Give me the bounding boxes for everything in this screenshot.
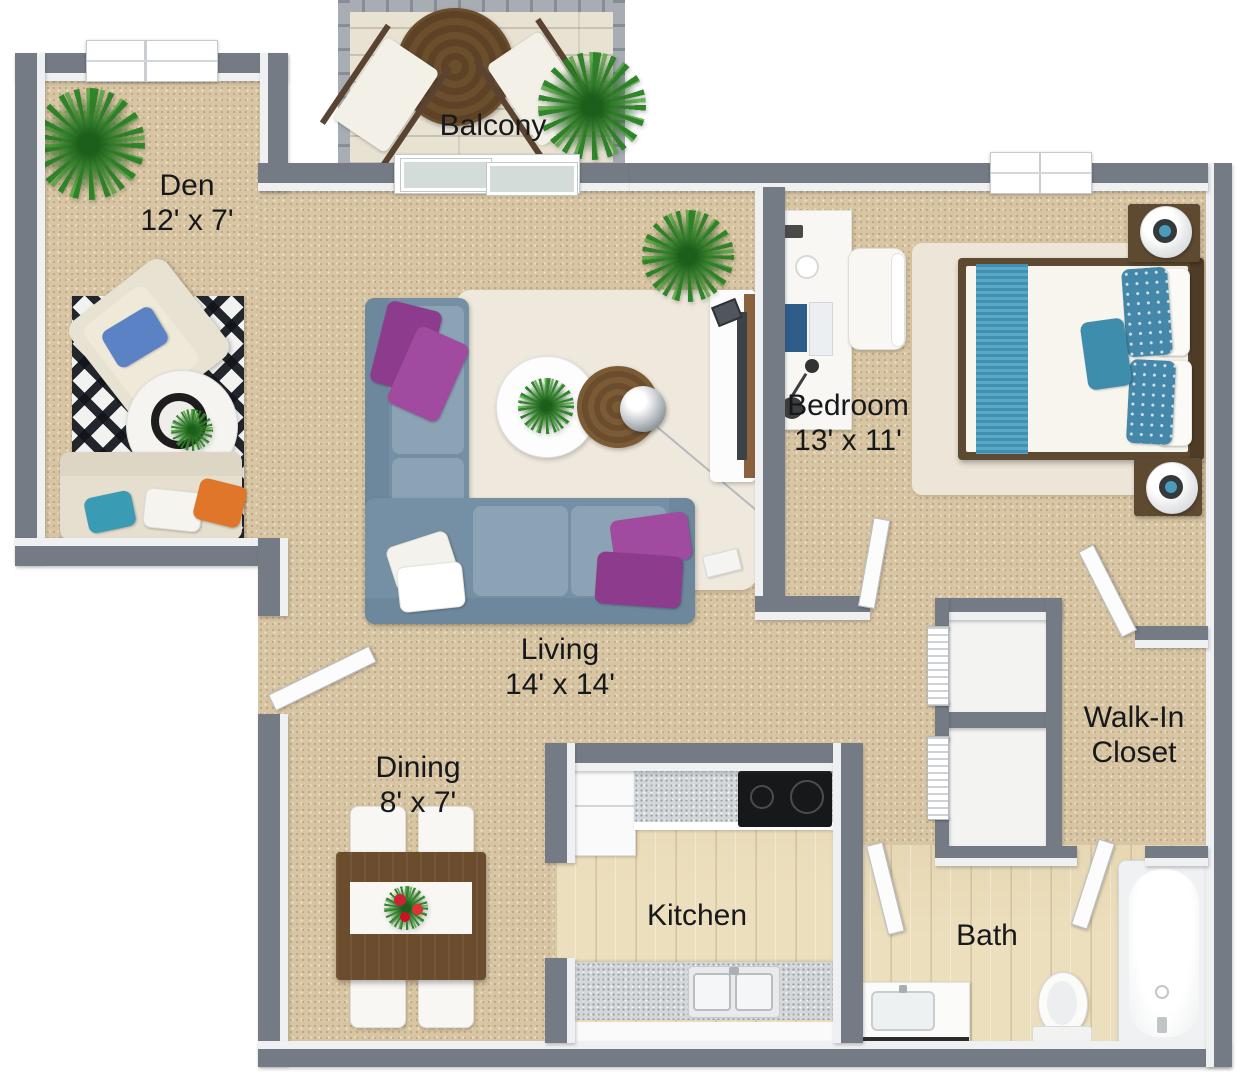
wall-bath-top-west: [935, 846, 1077, 866]
wall-closet-west-stub: [935, 700, 949, 740]
red-flower: [400, 912, 410, 922]
sink-basin: [693, 973, 731, 1011]
wall-closet-top: [935, 598, 1062, 620]
den-dims: 12' x 7': [140, 203, 233, 238]
toilet-seat: [1047, 981, 1077, 1025]
wall-den-left: [15, 53, 45, 563]
wall-kitchen-right: [833, 743, 863, 1043]
dining-table: [336, 852, 486, 980]
wall-bedroom-top-west: [630, 163, 997, 191]
laptop-screen: [785, 304, 807, 352]
bedroom-name: Bedroom: [787, 389, 909, 422]
wall-living-top-west: [258, 163, 403, 191]
desk-chair: [848, 248, 906, 350]
tv-console: [710, 290, 756, 482]
purple-pillow: [594, 551, 683, 609]
double-sink: [688, 966, 780, 1018]
wall-living-bedroom: [755, 187, 785, 602]
tub-faucet: [1157, 1017, 1167, 1033]
vanity-faucet: [899, 985, 907, 993]
window-sill-line: [991, 172, 1091, 174]
burner: [790, 780, 824, 814]
fridge-door-line: [567, 805, 635, 807]
desk-lamp-head: [805, 359, 819, 373]
slider-glass-panel: [401, 159, 491, 191]
refrigerator: [566, 768, 636, 856]
wall-left-upper: [258, 538, 288, 616]
room-label-balcony: Balcony: [440, 108, 547, 143]
red-flower: [412, 904, 423, 915]
walk-in-closet-name: Walk-In Closet: [1084, 701, 1185, 769]
wall-closet-west-stub: [935, 816, 949, 848]
wall-closet-mid: [935, 712, 1046, 728]
balcony-sliding-door: [394, 154, 580, 194]
kitchen-toe-band: [566, 1022, 833, 1043]
balcony-name: Balcony: [440, 109, 547, 142]
wall-kitchen-top: [545, 743, 855, 771]
wall-right: [1206, 163, 1232, 1067]
den-window: [86, 40, 218, 82]
red-flower: [394, 894, 406, 906]
tv-screen: [737, 312, 747, 460]
dining-dims: 8' x 7': [375, 785, 460, 820]
faucet: [729, 967, 739, 975]
arc-lamp-shade: [620, 386, 666, 432]
living-dims: 14' x 14': [505, 667, 615, 702]
tub-basin: [1129, 869, 1199, 1037]
dining-chair: [350, 974, 406, 1028]
wall-bedroom-top-east: [1088, 163, 1208, 191]
slider-glass-panel: [487, 163, 577, 195]
linen-closet-bifold-door: [927, 626, 949, 706]
wall-left-lower: [258, 714, 288, 1065]
room-label-bedroom: Bedroom 13' x 11': [787, 388, 909, 459]
teal-pillow: [83, 489, 137, 534]
room-label-dining: Dining 8' x 7': [375, 750, 460, 821]
living-name: Living: [521, 633, 599, 666]
table-plant: [171, 409, 213, 451]
bath-name: Bath: [956, 919, 1018, 952]
den-name: Den: [159, 169, 214, 202]
coffee-cup: [795, 255, 819, 279]
lamp-center: [1165, 481, 1177, 493]
burner: [750, 785, 774, 809]
window-sill-line: [87, 60, 217, 62]
living-plant: [642, 210, 734, 302]
bathtub: [1118, 860, 1212, 1048]
teal-striped-runner: [976, 264, 1028, 454]
teal-floral-pillow: [1121, 267, 1173, 358]
linen-closet-bifold-door: [927, 736, 949, 820]
wall-kitchen-left-lower: [545, 958, 575, 1043]
wall-closet-west-stub: [935, 598, 949, 628]
sofa-cushion: [473, 506, 568, 596]
wall-bath-top-east: [1145, 846, 1208, 866]
wall-kitchen-left-upper: [545, 743, 575, 863]
room-label-living: Living 14' x 14': [505, 632, 615, 703]
den-plant: [33, 88, 145, 200]
white-pillow: [396, 561, 466, 614]
laptop: [785, 299, 833, 357]
wall-walkin-north: [1135, 626, 1208, 648]
teal-accent-pillow: [1079, 317, 1132, 390]
lamp-center: [1159, 225, 1171, 237]
coffee-table-plant: [518, 378, 574, 434]
bed: [958, 258, 1204, 460]
room-label-kitchen: Kitchen: [647, 898, 747, 933]
dining-name: Dining: [375, 751, 460, 784]
wall-bedroom-south: [755, 596, 870, 620]
dining-chair: [418, 974, 474, 1028]
router: [783, 225, 803, 238]
vanity-sink: [871, 991, 935, 1031]
laptop-keyboard: [809, 302, 833, 356]
headboard: [1190, 258, 1204, 460]
balcony-plant: [538, 52, 646, 160]
den-loveseat: [60, 452, 242, 540]
sink-basin: [735, 973, 773, 1011]
bedroom-window: [990, 152, 1092, 194]
balcony-railing-top: [338, 0, 625, 12]
room-label-den: Den 12' x 7': [140, 168, 233, 239]
teal-floral-pillow: [1126, 359, 1176, 445]
loveseat-back: [60, 452, 242, 476]
bath-vanity: [856, 982, 970, 1045]
wall-den-bottom: [15, 538, 285, 566]
tub-drain: [1155, 985, 1169, 999]
chair-back: [891, 253, 905, 347]
room-label-bath: Bath: [956, 918, 1018, 953]
kitchen-name: Kitchen: [647, 899, 747, 932]
bedroom-dims: 13' x 11': [787, 423, 909, 458]
cooktop: [738, 771, 832, 827]
floor-plan: Den 12' x 7' Balcony Bedroom 13' x 11' L…: [0, 0, 1245, 1080]
wall-bottom: [258, 1041, 1230, 1067]
room-label-walk-in-closet: Walk-In Closet: [1054, 700, 1214, 771]
